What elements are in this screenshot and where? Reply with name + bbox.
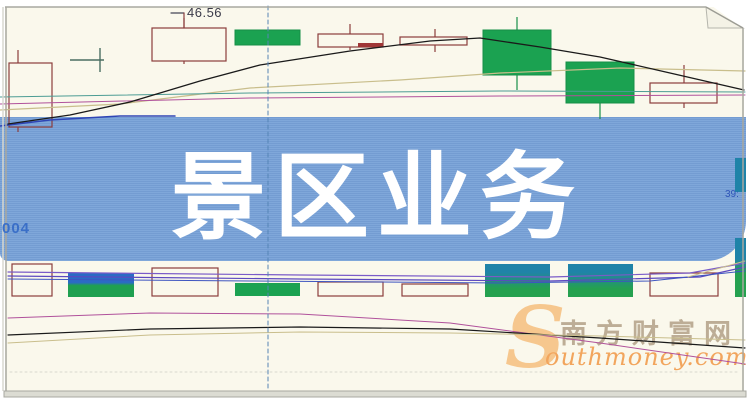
bottom-scrollbar[interactable] bbox=[4, 391, 746, 397]
banner-title: 景区业务 bbox=[0, 117, 746, 261]
stock-code-fragment: 004 bbox=[2, 220, 30, 237]
price-callout-label: 46.56 bbox=[187, 5, 222, 20]
right-edge-price-label: 39: bbox=[725, 189, 739, 200]
